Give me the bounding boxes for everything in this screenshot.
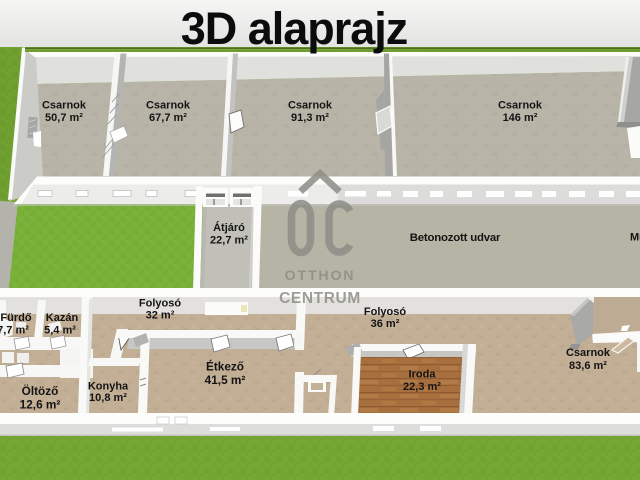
svg-text:Étkező: Étkező — [206, 360, 244, 374]
svg-text:Csarnok: Csarnok — [42, 100, 87, 112]
svg-text:Csarnok: Csarnok — [146, 100, 191, 112]
svg-text:Csarnok: Csarnok — [288, 100, 333, 112]
svg-text:Folyosó: Folyosó — [364, 306, 406, 318]
svg-text:22,3 m²: 22,3 m² — [403, 381, 441, 393]
svg-text:Öltöző: Öltöző — [22, 384, 59, 398]
svg-text:50,7 m²: 50,7 m² — [45, 112, 83, 124]
svg-text:OTTHON: OTTHON — [285, 268, 356, 284]
svg-text:32 m²: 32 m² — [146, 310, 175, 322]
svg-text:3D alaprajz: 3D alaprajz — [181, 3, 408, 54]
svg-text:CENTRUM: CENTRUM — [279, 290, 361, 307]
svg-text:41,5 m²: 41,5 m² — [205, 373, 246, 387]
svg-text:10,8 m²: 10,8 m² — [89, 392, 127, 404]
svg-text:146 m²: 146 m² — [503, 112, 538, 124]
svg-text:Csarnok: Csarnok — [498, 100, 543, 112]
svg-text:Kazán: Kazán — [46, 312, 79, 324]
svg-text:Műh: Műh — [630, 232, 640, 244]
svg-text:22,7 m²: 22,7 m² — [210, 235, 248, 247]
svg-text:Konyha: Konyha — [88, 381, 129, 393]
svg-text:83,6 m²: 83,6 m² — [569, 360, 607, 372]
svg-text:5,4 m²: 5,4 m² — [44, 325, 76, 337]
svg-text:Fürdő: Fürdő — [0, 312, 31, 324]
svg-text:Folyosó: Folyosó — [139, 298, 181, 310]
svg-text:36 m²: 36 m² — [371, 318, 400, 330]
svg-text:Iroda: Iroda — [409, 369, 437, 381]
svg-text:Betonozott udvar: Betonozott udvar — [410, 232, 501, 244]
svg-text:Csarnok: Csarnok — [566, 347, 611, 359]
svg-text:7,7 m²: 7,7 m² — [0, 325, 29, 337]
svg-text:91,3 m²: 91,3 m² — [291, 112, 329, 124]
svg-text:Átjáró: Átjáró — [213, 221, 245, 234]
svg-text:67,7 m²: 67,7 m² — [149, 112, 187, 124]
svg-text:12,6 m²: 12,6 m² — [20, 398, 61, 412]
